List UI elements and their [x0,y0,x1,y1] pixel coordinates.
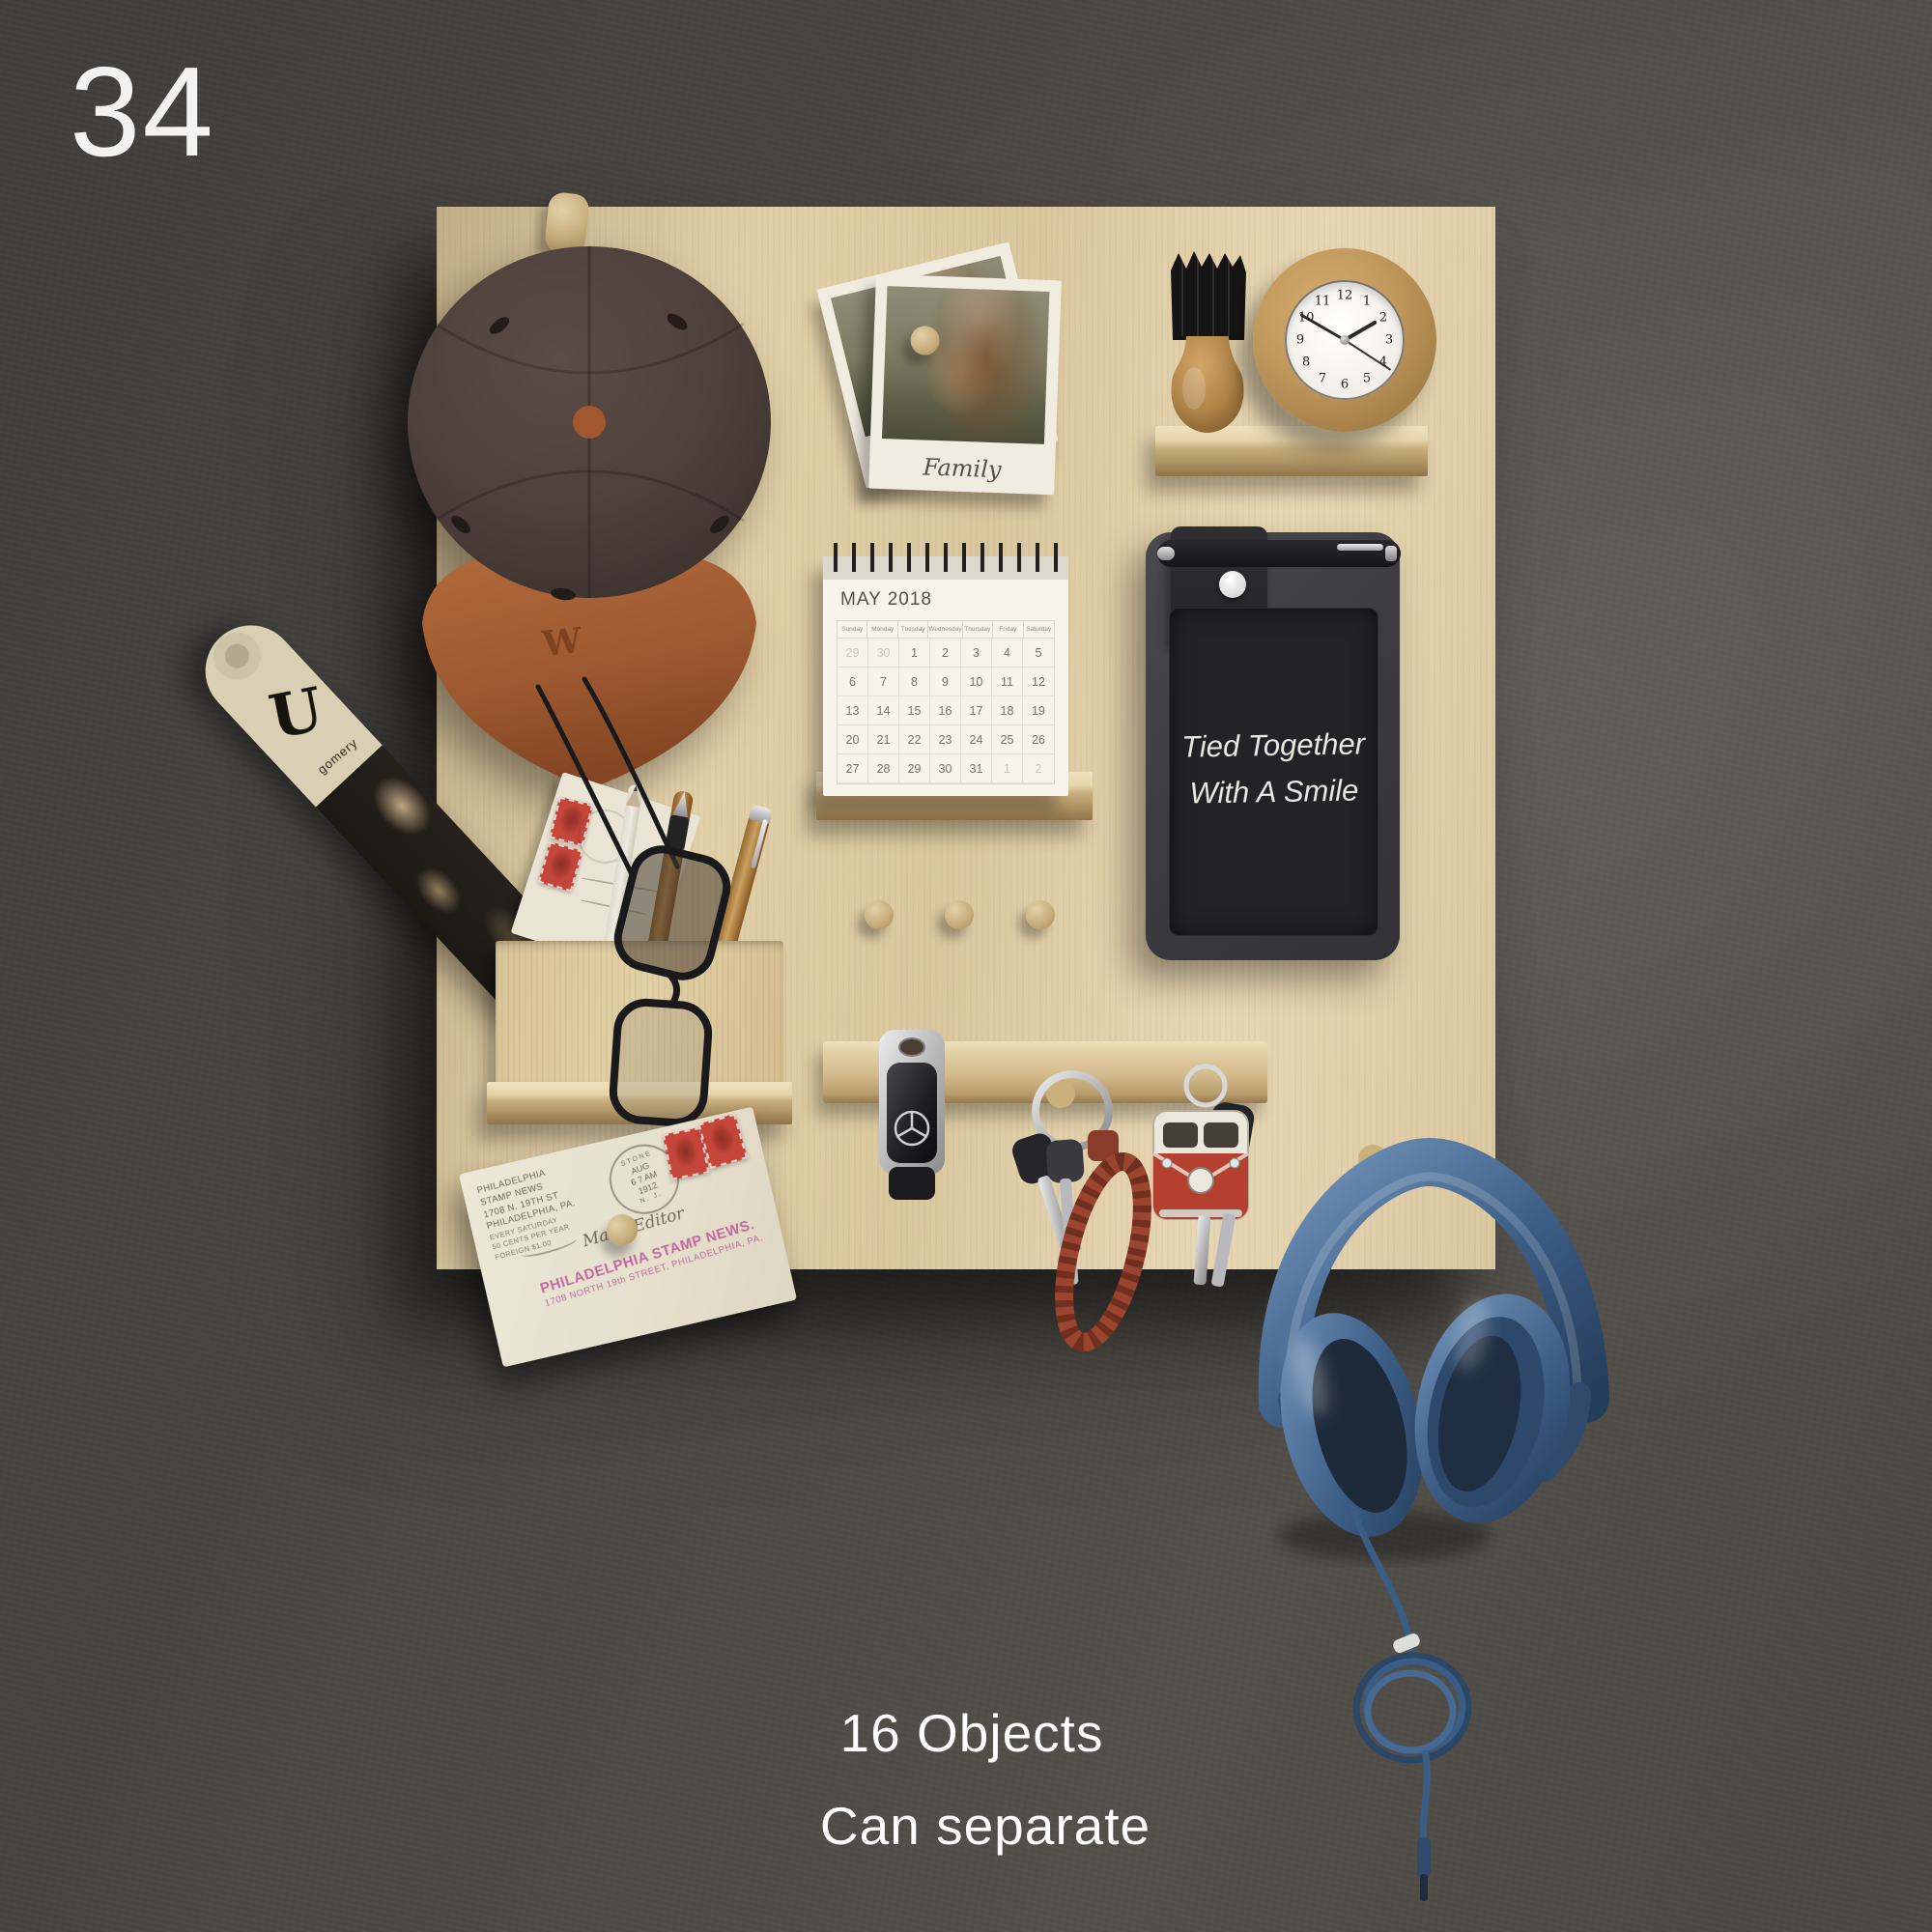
calendar-weekday: Tuesday [898,621,928,638]
calendar-day: 10 [961,668,992,696]
key-blade [1210,1213,1236,1288]
keychain-ring [1186,1066,1225,1105]
calendar-day: 3 [961,639,992,668]
calendar-weekday-row: SundayMondayTuesdayWednesdayThursdayFrid… [837,620,1055,638]
calendar-day: 1 [899,639,930,668]
clock-numeral: 8 [1302,355,1310,370]
clock-pivot [1340,335,1350,345]
tablet-screen: Tied Together With A Smile [1169,608,1378,936]
brush-highlight [1182,367,1206,410]
calendar-grid: 2930123456789101112131415161718192021222… [837,638,1055,784]
tablet-handwriting: Tied Together With A Smile [1169,721,1378,817]
calendar-day: 30 [868,639,899,668]
calendar-day: 9 [930,668,961,696]
glasses-temple [538,687,633,876]
calendar-day: 27 [838,754,868,783]
lcd-writing-tablet: Tied Together With A Smile [1146,532,1400,960]
wall-clock: 121234567891011 [1253,248,1436,432]
cable-plug-tip [1420,1874,1428,1901]
key-fob-hole [899,1038,924,1056]
clock-numeral: 1 [1363,295,1371,309]
caption-object-count: 16 Objects [840,1702,1104,1764]
cap-button [573,406,606,439]
postmark-line: 6 [630,1177,638,1187]
vw-bus-charm [1153,1111,1248,1219]
polaroid-caption: Family [869,452,1056,486]
clock-numeral: 5 [1363,371,1371,385]
keyring-with-braided-strap [983,1051,1157,1360]
brush-handle [1172,336,1244,433]
calendar-day: 2 [930,639,961,668]
calendar-day: 6 [838,668,868,696]
calendar-day: 25 [992,725,1023,754]
cable-upper [1352,1507,1410,1652]
bus-headlight [1162,1158,1172,1168]
eyeglasses [488,671,749,1145]
calendar-day: 15 [899,696,930,725]
bus-headlight [1230,1158,1239,1168]
calendar-day: 18 [992,696,1023,725]
tablet-text-line1: Tied Together [1169,721,1378,771]
page-number: 34 [70,39,215,185]
bus-windshield [1163,1122,1198,1148]
key-fob-hinge [889,1167,935,1200]
board-peg [945,900,974,929]
calendar-weekday: Saturday [1024,621,1054,638]
cable-plug-body [1417,1837,1431,1878]
headphone-cable [1333,1507,1517,1913]
calendar-day: 19 [1023,696,1054,725]
board-peg [1026,900,1055,929]
clock-numeral: 11 [1315,295,1331,309]
clock-numeral: 4 [1379,355,1387,370]
calendar-day: 7 [868,668,899,696]
glasses-upper-lens [611,843,732,982]
clock-numeral: 6 [1341,378,1349,392]
clock-numeral: 12 [1337,289,1353,303]
calendar-weekday: Sunday [838,621,867,638]
calendar-day: 14 [868,696,899,725]
calendar-weekday: Wednesday [928,621,962,638]
calendar-spiral-binding [829,543,1063,572]
calendar-day: 4 [992,639,1023,668]
clock-numeral: 10 [1298,311,1315,326]
clock-numeral: 9 [1296,333,1304,348]
calendar-weekday: Thursday [963,621,993,638]
mercedes-key-fob [864,1028,960,1202]
clock-numeral: 7 [1319,371,1326,385]
stylus-clip [1337,544,1383,551]
clock-face: 121234567891011 [1285,280,1405,400]
calendar-weekday: Friday [993,621,1023,638]
calendar-day: 30 [930,754,961,783]
scene: 34 W Family [0,0,1932,1932]
calendar-day: 24 [961,725,992,754]
stylus-end-cap [1385,546,1397,561]
polaroid-photo-front: Family [868,274,1062,496]
glasses-lower-lens [611,1001,710,1124]
calendar-day: 22 [899,725,930,754]
cable-tail [1423,1750,1427,1840]
caption-can-separate: Can separate [820,1795,1151,1857]
desk-calendar: MAY 2018 SundayMondayTuesdayWednesdayThu… [823,556,1068,796]
bus-windshield [1204,1122,1238,1148]
stylus-tip [1157,547,1175,560]
cap-monogram: W [539,620,583,665]
calendar-weekday: Monday [867,621,897,638]
calendar-day: 13 [838,696,868,725]
board-peg [865,900,894,929]
calendar-day: 29 [899,754,930,783]
calendar-day: 28 [868,754,899,783]
glasses-temple [584,679,677,867]
tablet-button [1219,571,1246,598]
calendar-day: 20 [838,725,868,754]
headphones [1239,1109,1621,1568]
polaroid-photo-image [882,286,1049,444]
calendar-day: 17 [961,696,992,725]
calendar-day: 12 [1023,668,1054,696]
calendar-day: 23 [930,725,961,754]
calendar-day: 5 [1023,639,1054,668]
calendar-day: 29 [838,639,868,668]
vw-logo-badge [1188,1168,1213,1193]
stylus-pen [1157,540,1401,567]
calendar-day: 8 [899,668,930,696]
clock-numeral: 2 [1379,311,1387,326]
tablet-text-line2: With A Smile [1170,767,1378,817]
newspaper-masthead-letter: U [264,673,328,753]
calendar-day: 1 [992,754,1023,783]
calendar-day: 2 [1023,754,1054,783]
calendar-day: 31 [961,754,992,783]
calendar-day: 11 [992,668,1023,696]
calendar-day: 26 [1023,725,1054,754]
calendar-title: MAY 2018 [840,589,932,611]
calendar-day: 16 [930,696,961,725]
wooden-brush [1153,247,1262,437]
calendar-day: 21 [868,725,899,754]
cable-coil [1368,1673,1453,1750]
key-blade [1194,1215,1211,1286]
clock-numeral: 3 [1385,333,1393,348]
